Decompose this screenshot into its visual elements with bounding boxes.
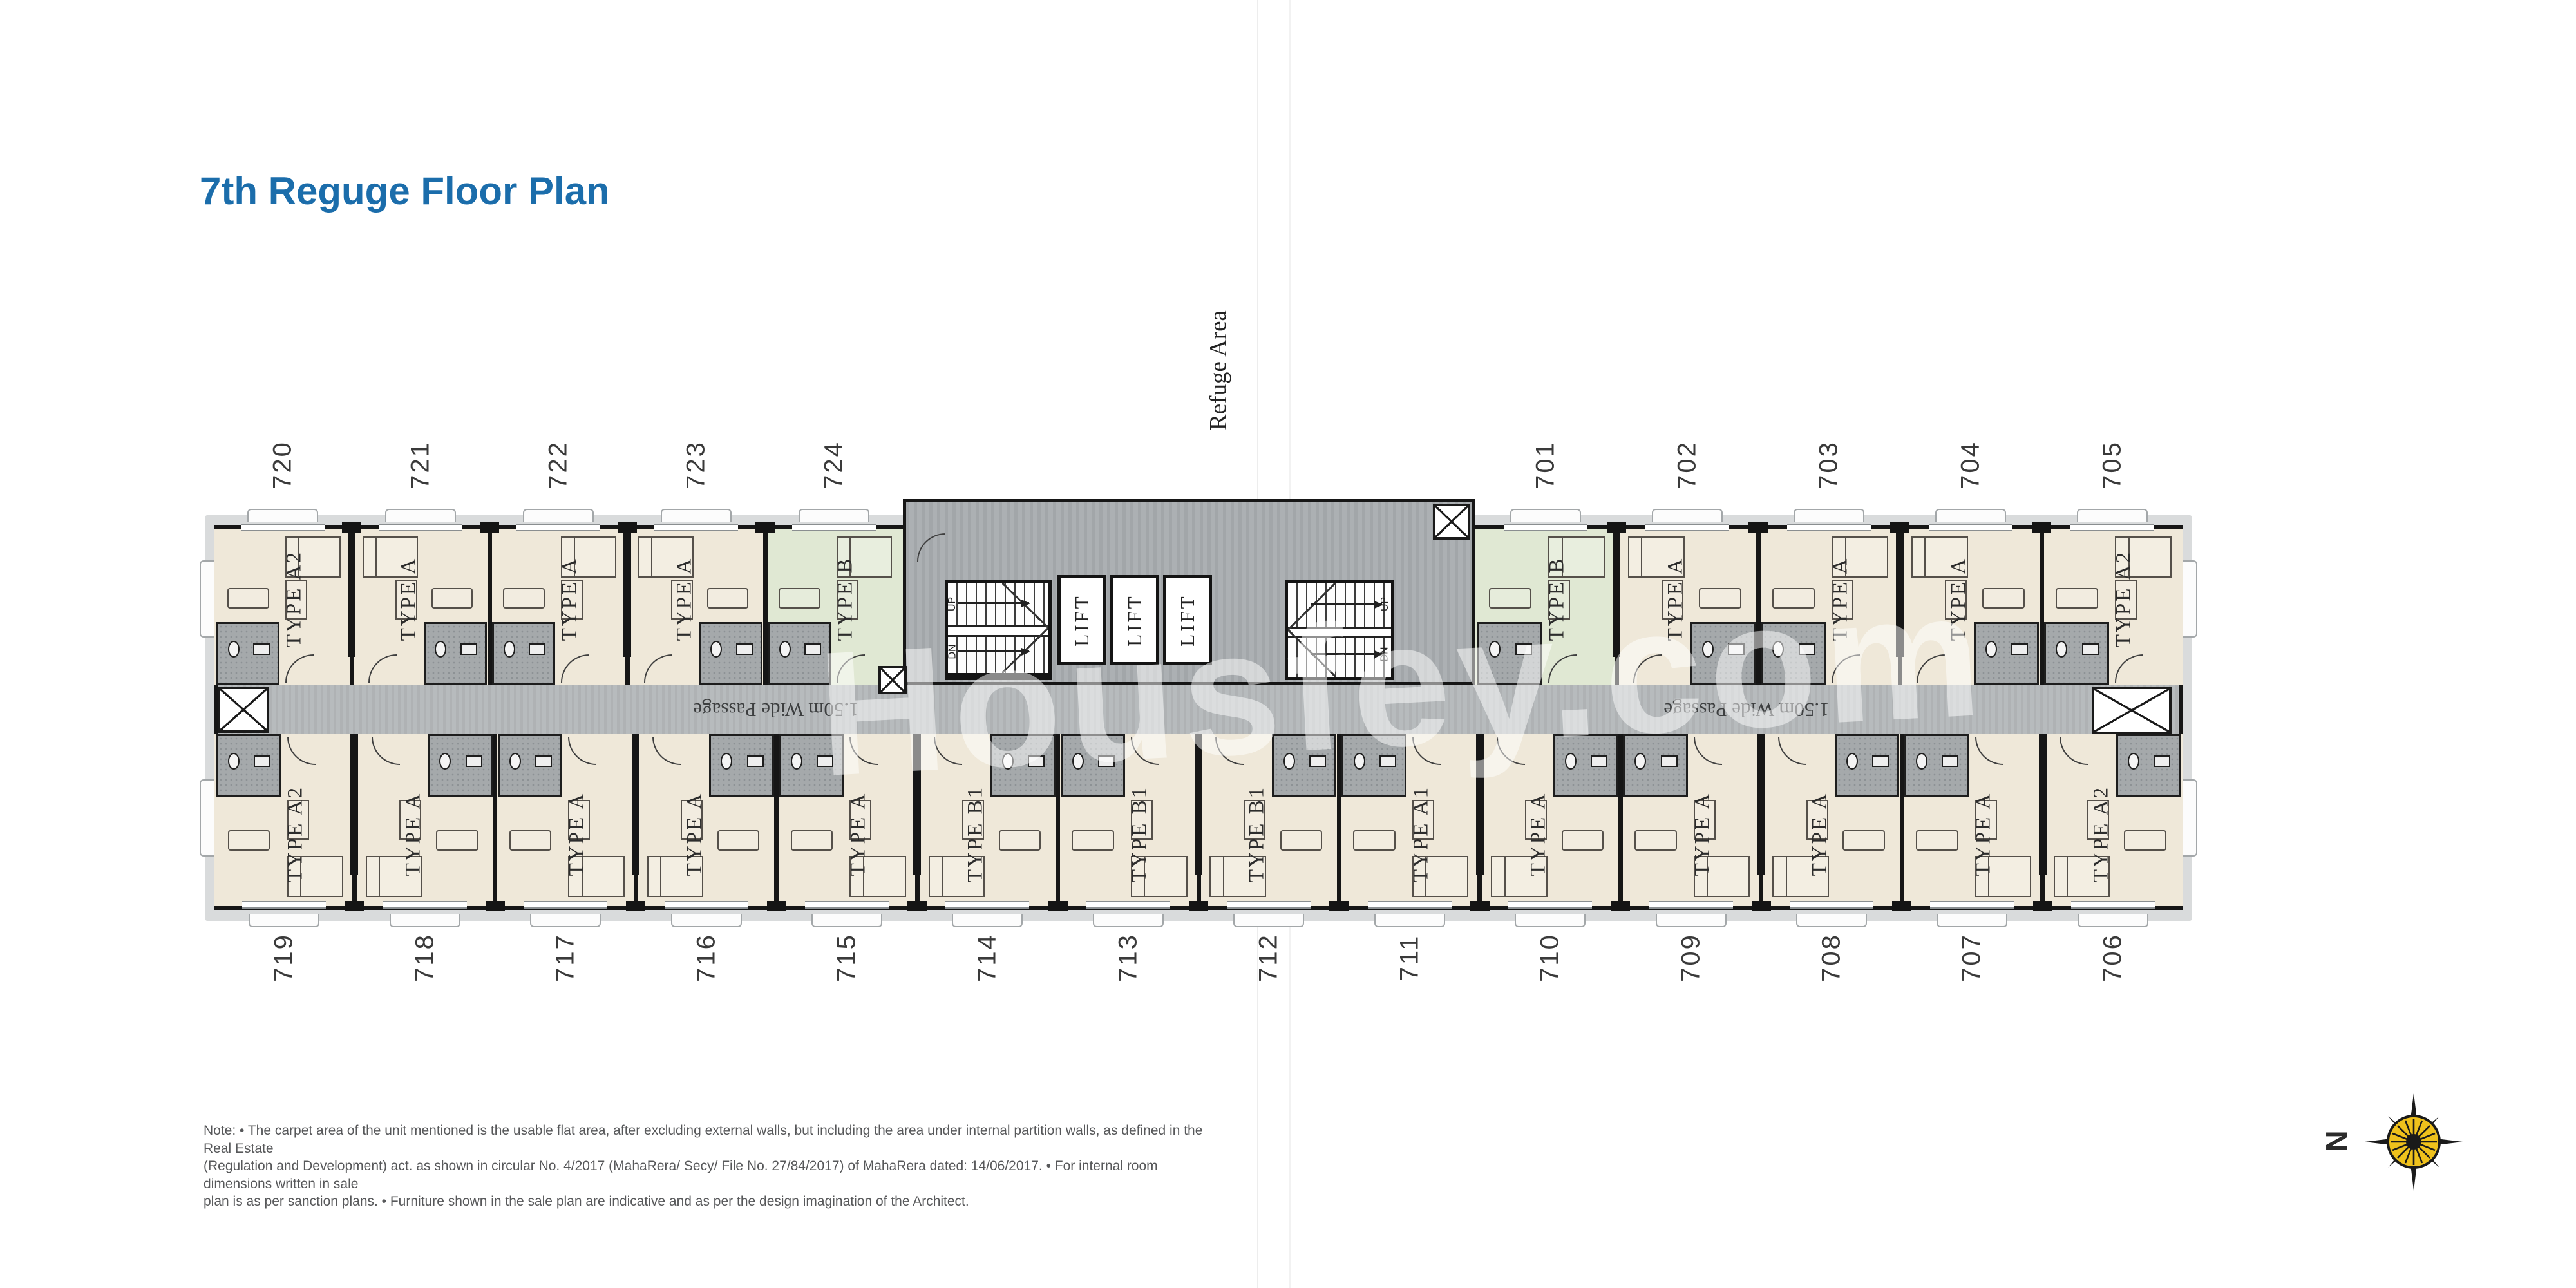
party-wall <box>493 734 497 906</box>
wall-stub <box>767 901 786 911</box>
sofa <box>431 588 473 609</box>
balcony-tab <box>799 509 869 522</box>
note-line-1: Note: • The carpet area of the unit ment… <box>204 1122 1208 1157</box>
unit-number-702: 702 <box>1673 440 1702 489</box>
unit-number-716: 716 <box>692 933 721 982</box>
unit-number-707: 707 <box>1958 933 1987 982</box>
balcony-tab <box>1656 914 1727 927</box>
balcony-tab <box>523 509 594 522</box>
bathroom <box>428 734 492 797</box>
sofa <box>436 830 478 851</box>
pair-wall <box>623 529 631 657</box>
window <box>1929 524 2012 531</box>
balcony-tab <box>1796 914 1867 927</box>
sofa <box>1280 830 1323 851</box>
balcony-tab <box>390 914 460 927</box>
balcony-tab <box>530 914 601 927</box>
balcony-tab <box>1515 914 1586 927</box>
wall-stub <box>1607 522 1626 533</box>
sofa <box>1982 588 2025 609</box>
sink-icon <box>2082 643 2099 655</box>
window <box>1086 901 1170 909</box>
sofa <box>717 830 760 851</box>
unit-number-705: 705 <box>2098 440 2127 489</box>
unit-number-719: 719 <box>270 933 299 982</box>
unit-type-label: TYPE A <box>1690 792 1714 876</box>
unit-type-label: TYPE A <box>1527 792 1551 876</box>
window <box>792 524 876 531</box>
sink-icon <box>535 755 552 767</box>
unit-type-label: TYPE B1 <box>1245 786 1269 882</box>
window <box>383 901 467 909</box>
balcony-tab <box>1937 914 2007 927</box>
unit-number-711: 711 <box>1395 934 1424 981</box>
unit-number-706: 706 <box>2098 933 2127 982</box>
sink-icon <box>736 643 753 655</box>
wall-stub <box>480 522 499 533</box>
unit-type-label: TYPE A <box>397 557 421 641</box>
unit-number-720: 720 <box>269 440 298 489</box>
unit-number-722: 722 <box>544 440 573 489</box>
bathroom <box>498 734 562 797</box>
unit-number-710: 710 <box>1536 933 1565 982</box>
sink-icon <box>466 755 482 767</box>
sofa <box>791 830 833 851</box>
window <box>805 901 889 909</box>
unit-number-715: 715 <box>832 933 861 982</box>
sofa <box>227 588 269 609</box>
compass-rose-icon <box>2362 1090 2465 1197</box>
north-label: N <box>2319 1130 2354 1151</box>
unit-type-label: TYPE A <box>565 792 589 876</box>
balcony-tab <box>2183 560 2197 638</box>
unit-type-label: TYPE A <box>401 792 425 876</box>
balcony-tab <box>1374 914 1445 927</box>
toilet-icon <box>779 641 791 658</box>
note-line-2: (Regulation and Development) act. as sho… <box>204 1157 1208 1193</box>
sink-icon <box>2011 643 2028 655</box>
balcony-tab <box>249 914 319 927</box>
pair-wall <box>2039 734 2047 875</box>
window <box>241 524 325 531</box>
unit-number-708: 708 <box>1817 933 1846 982</box>
window <box>1508 901 1592 909</box>
unit-number-717: 717 <box>551 933 580 982</box>
balcony-tab <box>2077 509 2148 522</box>
window <box>1504 524 1587 531</box>
balcony-tab <box>247 509 318 522</box>
unit-number-709: 709 <box>1676 933 1705 982</box>
sofa <box>1353 830 1396 851</box>
unit-type-label: TYPE A2 <box>284 786 308 882</box>
balcony-tab <box>1093 914 1164 927</box>
window <box>2071 901 2155 909</box>
sink-icon <box>2154 755 2170 767</box>
bathroom <box>492 622 555 685</box>
balcony-tab <box>385 509 456 522</box>
window <box>1790 901 1873 909</box>
wall-stub <box>1470 901 1490 911</box>
unit-number-703: 703 <box>1815 440 1844 489</box>
pair-wall <box>632 734 639 875</box>
sink-icon <box>253 643 270 655</box>
balcony-tab <box>661 509 732 522</box>
unit-number-721: 721 <box>406 440 435 489</box>
wall-stub <box>1748 522 1768 533</box>
unit-type-label: TYPE A <box>558 557 582 641</box>
unit-number-713: 713 <box>1113 933 1142 982</box>
wall-stub <box>2033 901 2052 911</box>
window <box>1649 901 1733 909</box>
unit-type-label: TYPE A <box>1808 792 1832 876</box>
unit-number-712: 712 <box>1255 933 1283 982</box>
sofa <box>1916 830 1958 851</box>
window <box>945 901 1029 909</box>
balcony-tab <box>952 914 1023 927</box>
balcony-tab <box>1510 509 1581 522</box>
unit-type-label: TYPE A <box>673 557 697 641</box>
balcony-tab <box>2183 779 2197 857</box>
toilet-icon <box>228 641 240 658</box>
corridor-end-shaft-left <box>218 687 269 733</box>
bathroom <box>424 622 487 685</box>
unit-number-724: 724 <box>820 440 849 489</box>
party-wall <box>763 529 768 685</box>
balcony-tab <box>671 914 742 927</box>
unit-type-label: TYPE A <box>1972 792 1996 876</box>
balcony-tab <box>811 914 882 927</box>
sofa <box>228 830 270 851</box>
sofa <box>707 588 748 609</box>
window <box>1368 901 1452 909</box>
disclaimer-note: Note: • The carpet area of the unit ment… <box>204 1122 1208 1211</box>
corridor-end-shaft-right <box>2092 687 2172 734</box>
pair-wall <box>348 529 355 657</box>
window <box>379 524 462 531</box>
page: 7th Reguge Floor Plan TYPE A2720TYPE A72… <box>0 0 2576 1288</box>
unit-number-701: 701 <box>1531 440 1560 489</box>
sink-icon <box>529 643 545 655</box>
refuge-area-label: Refuge Area <box>1205 310 1233 430</box>
toilet-icon <box>504 641 515 658</box>
wall-stub <box>2032 522 2051 533</box>
wall-stub <box>907 901 927 911</box>
balcony-tab <box>1794 509 1864 522</box>
sink-icon <box>747 755 764 767</box>
note-line-3: plan is as per sanction plans. • Furnitu… <box>204 1193 1208 1211</box>
wall-stub <box>1890 522 1909 533</box>
window <box>1930 901 2014 909</box>
unit-number-704: 704 <box>1956 440 1985 489</box>
unit-type-label: TYPE A2 <box>2089 786 2113 882</box>
wall-stub <box>342 522 361 533</box>
party-wall <box>2040 529 2044 685</box>
sofa <box>509 830 552 851</box>
wall-stub <box>626 901 645 911</box>
unit-type-label: TYPE A2 <box>283 551 307 647</box>
bathroom <box>216 622 279 685</box>
unit-number-723: 723 <box>682 440 711 489</box>
sofa <box>1562 830 1604 851</box>
core-duct-shaft <box>1433 504 1470 540</box>
sofa <box>1842 830 1885 851</box>
sofa <box>503 588 544 609</box>
sofa <box>999 830 1041 851</box>
unit-type-label: TYPE A <box>683 792 706 876</box>
wall-stub <box>1189 901 1208 911</box>
window <box>1227 901 1311 909</box>
unit-number-718: 718 <box>410 933 439 982</box>
party-wall <box>774 734 779 906</box>
unit-number-714: 714 <box>973 933 1002 982</box>
wall-stub <box>755 522 775 533</box>
wall-stub <box>1329 901 1349 911</box>
window <box>2070 524 2154 531</box>
balcony-tab <box>1652 509 1723 522</box>
balcony-tab <box>200 779 214 857</box>
window <box>242 901 326 909</box>
wall-stub <box>486 901 505 911</box>
wall-stub <box>618 522 637 533</box>
window <box>654 524 738 531</box>
wall-stub <box>1048 901 1068 911</box>
bathroom <box>2044 622 2109 685</box>
window <box>524 901 607 909</box>
bathroom <box>699 622 762 685</box>
toilet-icon <box>791 753 802 770</box>
unit-type-label: TYPE A1 <box>1409 786 1433 882</box>
sofa <box>1634 830 1677 851</box>
page-title: 7th Reguge Floor Plan <box>200 169 610 213</box>
sink-icon <box>460 643 477 655</box>
bathroom <box>2116 734 2181 797</box>
window <box>1787 524 1871 531</box>
window <box>1645 524 1729 531</box>
wall-stub <box>1611 901 1630 911</box>
balcony-tab <box>1233 914 1304 927</box>
sofa <box>779 588 820 609</box>
sofa <box>1072 830 1114 851</box>
unit-type-label: TYPE A2 <box>2112 551 2136 647</box>
window <box>665 901 748 909</box>
sink-icon <box>254 755 270 767</box>
wall-stub <box>1752 901 1771 911</box>
balcony-tab <box>2078 914 2148 927</box>
sofa <box>2124 830 2166 851</box>
sofa <box>2056 588 2098 609</box>
bathroom <box>709 734 773 797</box>
balcony-tab <box>200 560 214 638</box>
wall-stub <box>345 901 364 911</box>
balcony-tab <box>1935 509 2006 522</box>
wall-stub <box>1892 901 1911 911</box>
party-wall <box>488 529 492 685</box>
bathroom <box>216 734 281 797</box>
pair-wall <box>350 734 358 875</box>
toilet-icon <box>2128 753 2139 770</box>
window <box>516 524 600 531</box>
